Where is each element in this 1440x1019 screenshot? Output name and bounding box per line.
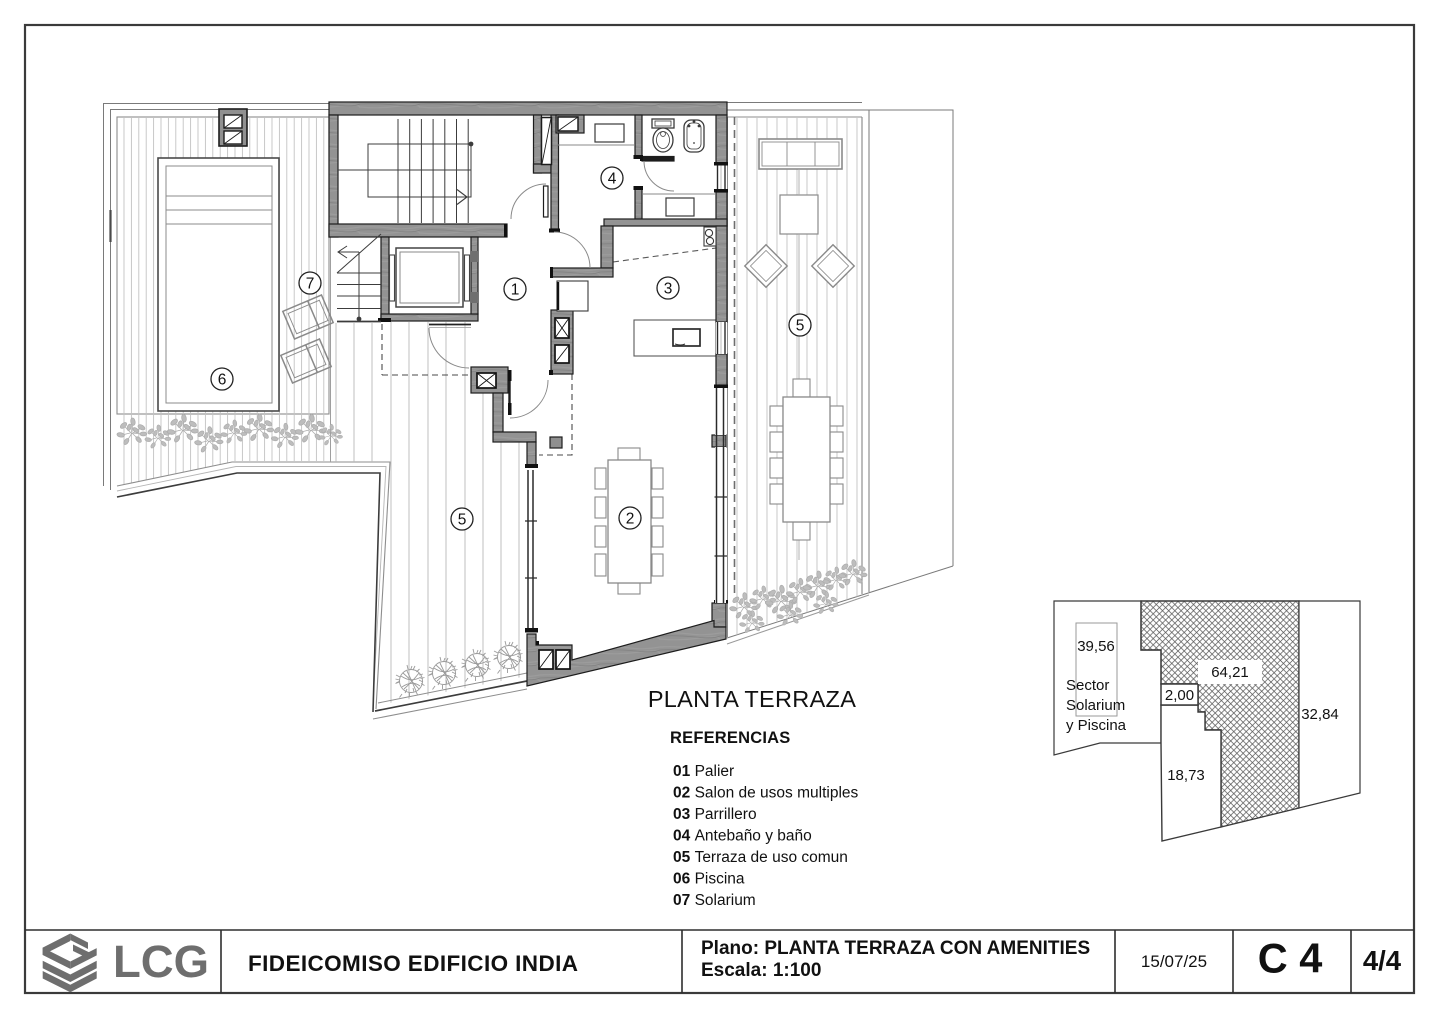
svg-text:2,00: 2,00 <box>1165 687 1194 704</box>
svg-text:Sector: Sector <box>1066 677 1109 694</box>
svg-text:01 Palier: 01 Palier <box>673 763 734 780</box>
svg-text:FIDEICOMISO EDIFICIO INDIA: FIDEICOMISO EDIFICIO INDIA <box>248 951 578 976</box>
svg-text:4/4: 4/4 <box>1363 945 1402 976</box>
svg-text:02 Salon de usos multiples: 02 Salon de usos multiples <box>673 785 859 802</box>
svg-text:Escala: 1:100: Escala: 1:100 <box>701 960 821 981</box>
svg-text:LCG: LCG <box>113 936 209 987</box>
svg-text:6: 6 <box>218 372 227 389</box>
svg-text:Plano: PLANTA TERRAZA CON AMEN: Plano: PLANTA TERRAZA CON AMENITIES <box>701 938 1090 959</box>
svg-text:5: 5 <box>458 512 467 529</box>
svg-text:15/07/25: 15/07/25 <box>1141 952 1207 971</box>
svg-text:18,73: 18,73 <box>1167 767 1205 784</box>
svg-text:C 4: C 4 <box>1258 935 1323 982</box>
svg-text:7: 7 <box>306 276 315 293</box>
svg-text:4: 4 <box>608 171 617 188</box>
svg-text:39,56: 39,56 <box>1077 638 1115 655</box>
svg-text:1: 1 <box>511 282 520 299</box>
svg-text:y Piscina: y Piscina <box>1066 717 1127 734</box>
svg-text:3: 3 <box>664 281 673 298</box>
svg-text:07 Solarium: 07 Solarium <box>673 892 756 909</box>
svg-text:REFERENCIAS: REFERENCIAS <box>670 729 790 747</box>
svg-text:06 Piscina: 06 Piscina <box>673 871 745 888</box>
svg-text:64,21: 64,21 <box>1211 664 1249 681</box>
svg-text:5: 5 <box>796 318 805 335</box>
svg-text:Solarium: Solarium <box>1066 697 1125 714</box>
svg-text:04 Antebaño y baño: 04 Antebaño y baño <box>673 828 812 845</box>
svg-text:2: 2 <box>626 511 635 528</box>
svg-text:32,84: 32,84 <box>1301 706 1339 723</box>
svg-text:03 Parrillero: 03 Parrillero <box>673 806 757 823</box>
svg-text:PLANTA TERRAZA: PLANTA TERRAZA <box>648 686 856 712</box>
svg-text:05 Terraza de uso comun: 05 Terraza de uso comun <box>673 849 848 866</box>
